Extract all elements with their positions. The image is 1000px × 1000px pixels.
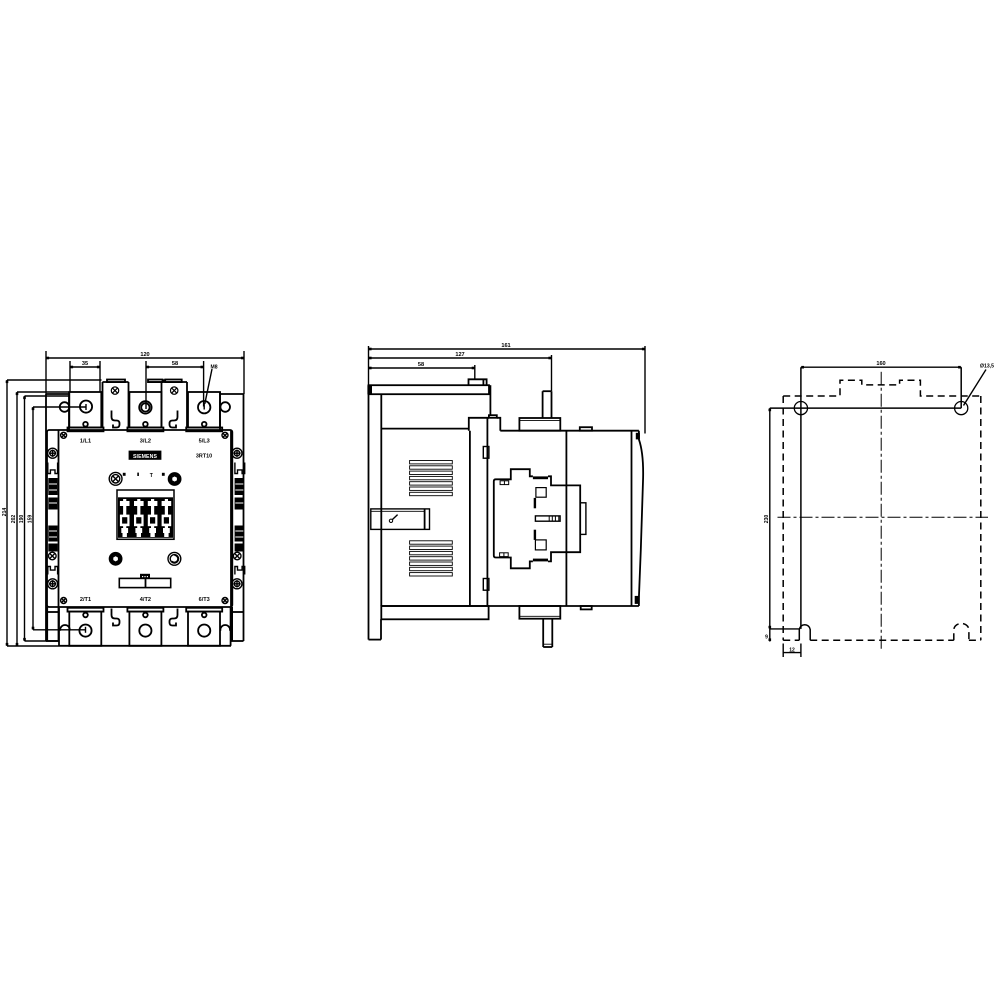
- svg-text:35: 35: [82, 361, 88, 367]
- svg-text:3RT10: 3RT10: [196, 454, 212, 460]
- svg-text:159: 159: [28, 515, 34, 524]
- svg-text:120: 120: [140, 352, 149, 358]
- svg-text:5/L3: 5/L3: [199, 439, 210, 445]
- svg-text:3/L2: 3/L2: [140, 439, 151, 445]
- svg-text:4/T2: 4/T2: [140, 597, 151, 603]
- svg-text:1/L1: 1/L1: [80, 439, 91, 445]
- svg-text:SIEMENS: SIEMENS: [133, 454, 157, 460]
- svg-text:161: 161: [501, 343, 510, 349]
- svg-text:2/T1: 2/T1: [80, 597, 91, 603]
- svg-text:12: 12: [789, 648, 795, 654]
- svg-text:160: 160: [876, 361, 885, 367]
- svg-text:Ø13,5: Ø13,5: [980, 364, 994, 370]
- svg-text:T: T: [150, 473, 154, 479]
- svg-text:M8: M8: [210, 365, 217, 371]
- svg-text:230: 230: [764, 515, 770, 524]
- svg-text:58: 58: [418, 362, 424, 368]
- svg-text:214: 214: [2, 508, 8, 517]
- svg-text:6/T3: 6/T3: [199, 597, 210, 603]
- svg-text:202: 202: [11, 515, 17, 524]
- svg-text:9: 9: [765, 635, 768, 641]
- svg-text:58: 58: [172, 361, 178, 367]
- svg-text:127: 127: [455, 352, 464, 358]
- svg-text:190: 190: [19, 515, 25, 524]
